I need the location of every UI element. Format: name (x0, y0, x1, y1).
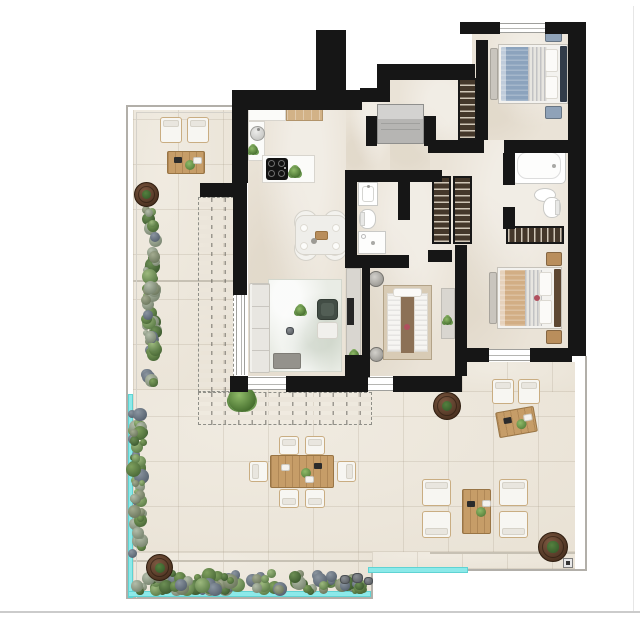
bush (195, 578, 210, 593)
site-line-right (633, 6, 634, 611)
bush (131, 580, 143, 592)
bedside-stool (369, 347, 384, 362)
floor-plan (0, 0, 640, 622)
survey-marker (563, 558, 573, 568)
lounge-armchair (499, 479, 528, 506)
wall (362, 262, 370, 380)
planter-center (433, 392, 461, 420)
side-table (317, 322, 338, 339)
cooktop (266, 158, 288, 180)
rock (352, 573, 363, 583)
ottoman (273, 353, 301, 369)
hedge-west-upper (143, 206, 160, 390)
window-bedroom3 (368, 377, 393, 391)
outdoor-dining-chair (279, 436, 299, 455)
bush (143, 310, 153, 320)
wall (398, 182, 410, 220)
bush (149, 251, 161, 263)
wall (393, 376, 462, 392)
bed-bedroom1 (498, 44, 568, 104)
bush (132, 527, 144, 539)
planter-se (538, 532, 568, 562)
pergola-south (198, 392, 372, 425)
bush (140, 439, 147, 446)
glass-door-west (236, 295, 245, 375)
bedside-stool (368, 271, 384, 287)
wall (455, 245, 467, 376)
rock (364, 577, 373, 585)
dresser-plant (443, 316, 452, 325)
foot-bench (490, 48, 498, 100)
wall (467, 348, 489, 362)
bush (326, 571, 337, 582)
toilet (543, 197, 561, 218)
wall (366, 116, 377, 146)
wardrobe-corridor (432, 176, 451, 244)
pergola-west (198, 197, 234, 392)
outdoor-dining-table (270, 455, 334, 488)
wall (504, 140, 570, 153)
outdoor-dining-chair (337, 461, 356, 482)
hedge-west-lower (129, 410, 146, 558)
wall (230, 376, 248, 392)
planter-sw (146, 554, 173, 581)
rug-plant (295, 305, 306, 316)
site-line-bottom (0, 611, 640, 613)
lounge-coffee-table (462, 489, 491, 534)
bush (149, 378, 158, 387)
wall (232, 90, 362, 110)
kitchen-plant (248, 145, 258, 155)
kitchen-sink (250, 126, 265, 141)
bush (261, 575, 269, 583)
property-line-north (126, 105, 233, 107)
property-line-south (126, 597, 372, 599)
bush (130, 494, 139, 503)
rug-deco (286, 327, 294, 335)
bush (128, 549, 137, 558)
wall (345, 255, 409, 268)
bed-bedroom3 (383, 285, 432, 360)
wall (460, 22, 500, 34)
decor-accent (404, 324, 410, 330)
outdoor-dining-chair (279, 489, 299, 508)
window-bedroom1 (500, 23, 545, 33)
lounge-chair (160, 117, 182, 143)
bed-bedroom2 (497, 267, 562, 329)
glass-balustrade-south-right (368, 567, 468, 573)
bush (128, 505, 141, 518)
wall (345, 170, 357, 267)
wall (233, 193, 247, 295)
bush (274, 585, 283, 594)
bistro-chair (518, 379, 540, 404)
sliding-door-living (248, 377, 286, 390)
decor-accent (534, 295, 540, 301)
planter-nw (134, 182, 159, 207)
wall (568, 24, 586, 356)
bush (133, 408, 146, 421)
entrance-mat (377, 104, 424, 144)
wardrobe-corridor (453, 176, 472, 244)
wall (286, 376, 344, 392)
bush (141, 295, 151, 305)
bush (130, 436, 139, 445)
island-plant (289, 166, 301, 178)
bush (208, 583, 221, 596)
nightstand (546, 252, 562, 266)
sofa (249, 283, 270, 373)
wall (530, 348, 572, 362)
washbasin (358, 182, 378, 206)
tv (347, 298, 354, 325)
wall (503, 207, 515, 229)
bush (132, 480, 139, 487)
wall (345, 170, 442, 182)
foot-bench (489, 272, 497, 324)
bush (175, 579, 187, 591)
wardrobe-hall (458, 78, 477, 140)
dresser (441, 288, 455, 339)
coffee-table (167, 151, 205, 174)
lounge-armchair (422, 479, 451, 506)
wall (476, 40, 488, 140)
outdoor-dining-chair (305, 436, 325, 455)
rock (340, 575, 350, 584)
wall (503, 153, 515, 185)
bush (145, 331, 157, 343)
wall (428, 250, 452, 262)
wall (345, 355, 362, 376)
dining-table (295, 215, 347, 255)
bush (221, 573, 228, 580)
lounge-armchair (422, 511, 451, 538)
wall (428, 140, 484, 153)
lounge-armchair (499, 511, 528, 538)
wall (232, 90, 248, 183)
property-line-east (585, 356, 587, 571)
wall (384, 64, 475, 80)
property-line-inner-north (136, 112, 233, 113)
lounge-chair (187, 117, 209, 143)
nightstand (545, 106, 562, 119)
armchair (317, 299, 338, 320)
shower (358, 231, 386, 254)
bush (144, 281, 157, 294)
bistro-chair (492, 379, 514, 404)
outdoor-dining-chair (249, 461, 268, 482)
nightstand (546, 330, 562, 344)
window-bedroom2 (489, 349, 530, 361)
outdoor-dining-chair (305, 489, 325, 508)
toilet (359, 209, 376, 229)
bush (252, 583, 262, 593)
